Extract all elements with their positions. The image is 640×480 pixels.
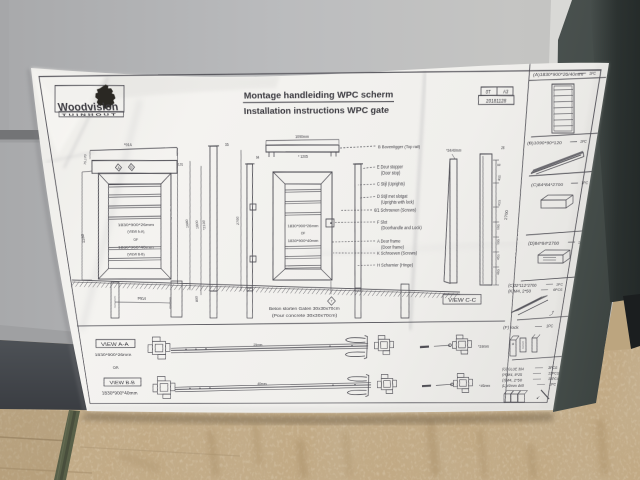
svg-text:(I)M4, 2*50: (I)M4, 2*50 (502, 378, 522, 382)
svg-text:*2100: *2100 (202, 220, 207, 231)
svg-text:A Deur frame: A Deur frame (377, 239, 401, 244)
svg-text:2700: 2700 (504, 210, 510, 220)
svg-text:1830*900*26mm: 1830*900*26mm (94, 353, 132, 358)
svg-text:28: 28 (501, 146, 505, 150)
svg-text:(Pour concrete 30x30x70cm): (Pour concrete 30x30x70cm) (272, 314, 338, 319)
svg-text:7: 7 (331, 299, 333, 303)
svg-text:⤴: ⤴ (549, 309, 555, 316)
svg-text:1PC: 1PC (556, 282, 564, 286)
svg-text:VIEW C-C: VIEW C-C (448, 298, 477, 303)
svg-text:K Schroeven (Screws): K Schroeven (Screws) (377, 251, 418, 256)
svg-text:800: 800 (194, 296, 198, 302)
svg-text:E Deur stopper: E Deur stopper (377, 165, 404, 171)
svg-text:35: 35 (225, 142, 230, 147)
svg-text:1PC: 1PC (581, 181, 589, 186)
svg-text:*170: *170 (177, 163, 183, 167)
svg-text:2700: 2700 (235, 216, 239, 225)
svg-text:(C)84*84*2700: (C)84*84*2700 (531, 182, 564, 187)
svg-text:190: 190 (497, 224, 501, 230)
svg-text:(B)1090*90*120: (B)1090*90*120 (527, 140, 563, 145)
svg-text:(D)84*84*2700: (D)84*84*2700 (528, 241, 560, 246)
svg-text:(VIEW A-A): (VIEW A-A) (127, 229, 145, 234)
svg-text:Montage handleiding WPC scherm: Montage handleiding WPC scherm (244, 89, 394, 101)
svg-text:T U I N H O U T: T U I N H O U T (62, 113, 117, 117)
svg-text:1180: 1180 (81, 234, 87, 243)
svg-text:OR: OR (113, 366, 119, 370)
svg-text:(VIEW B-B): (VIEW B-B) (127, 252, 145, 256)
svg-text:(K)M4, 2*50: (K)M4, 2*50 (508, 289, 532, 294)
svg-text:1680: 1680 (185, 219, 190, 228)
svg-text:1830*900*26mm: 1830*900*26mm (118, 222, 155, 227)
svg-text:D Stijl met slotgat: D Stijl met slotgat (377, 194, 408, 200)
svg-text:(Door stop): (Door stop) (381, 171, 401, 177)
svg-text:1PC: 1PC (546, 324, 554, 329)
svg-text:1830*900*40mm: 1830*900*40mm (288, 238, 319, 243)
svg-text:OF: OF (133, 238, 138, 242)
svg-text:(Door frame): (Door frame) (381, 245, 404, 250)
svg-text:90: 90 (497, 163, 501, 167)
svg-text:0T: 0T (485, 90, 491, 96)
svg-text:*914: *914 (124, 142, 133, 147)
svg-text:* 1205: * 1205 (298, 154, 308, 159)
svg-text:1830*900*40mm: 1830*900*40mm (102, 392, 138, 396)
svg-text:75,170: 75,170 (84, 154, 88, 165)
svg-text:Beton storten Gaten 30x30x70cm: Beton storten Gaten 30x30x70cm (269, 307, 340, 312)
svg-text:B Bovenligger (Top rail): B Bovenligger (Top rail) (378, 144, 421, 149)
svg-text:(Doorhandle and Lock): (Doorhandle and Lock) (381, 226, 422, 232)
svg-text:20181128: 20181128 (486, 98, 507, 104)
svg-text:(F) lock: (F) lock (503, 326, 519, 331)
svg-text:3PCS: 3PCS (548, 366, 558, 370)
svg-text:415: 415 (498, 175, 502, 181)
svg-text:(G) GLUE 304: (G) GLUE 304 (502, 367, 524, 372)
svg-text:13PCS: 13PCS (548, 371, 560, 375)
svg-text:1800: 1800 (195, 220, 200, 229)
svg-text:*45mm: *45mm (479, 384, 491, 388)
svg-text:OF: OF (301, 231, 306, 235)
svg-text:460: 460 (496, 269, 501, 275)
svg-text:450: 450 (496, 254, 501, 260)
svg-text:1830*900*26mm: 1830*900*26mm (287, 223, 318, 228)
svg-text:1PC: 1PC (549, 383, 557, 387)
svg-text:1PC: 1PC (580, 139, 587, 144)
svg-text:6/1 Schroeven (Screws): 6/1 Schroeven (Screws) (374, 208, 417, 214)
svg-text:1090mm: 1090mm (295, 134, 309, 139)
svg-text:VIEW B-B: VIEW B-B (109, 381, 135, 386)
svg-text:25mm: 25mm (253, 343, 262, 347)
svg-text:C Stijl (Uprights): C Stijl (Uprights) (377, 182, 405, 188)
svg-text:A3: A3 (503, 89, 509, 95)
svg-text:↙: ↙ (536, 395, 540, 400)
svg-text:VIEW A-A: VIEW A-A (101, 343, 129, 348)
svg-text:F Slot: F Slot (377, 220, 388, 225)
svg-text:(Uprights with lock): (Uprights with lock) (381, 200, 415, 206)
svg-text:413: 413 (497, 199, 502, 206)
svg-text:94: 94 (256, 156, 260, 160)
svg-text:1PC: 1PC (589, 71, 597, 76)
svg-text:(A)1830*900*26/40mm: (A)1830*900*26/40mm (533, 71, 584, 77)
svg-text:H Scharnier (Hinge): H Scharnier (Hinge) (377, 263, 413, 268)
svg-text:(L)40mm drill: (L)40mm drill (502, 384, 524, 388)
svg-text:6PCS: 6PCS (553, 288, 563, 292)
svg-text:190: 190 (496, 238, 501, 244)
svg-text:P914: P914 (137, 297, 146, 302)
svg-text:40mm: 40mm (257, 382, 267, 386)
svg-text:Installation instructions WPC: Installation instructions WPC gate (244, 105, 390, 116)
svg-text:(H)M4, 8*25: (H)M4, 8*25 (502, 373, 523, 377)
svg-text:*34/40mm: *34/40mm (446, 148, 462, 153)
svg-text:*24mm: *24mm (478, 345, 490, 350)
svg-text:(C)32*112*2700: (C)32*112*2700 (508, 284, 537, 289)
